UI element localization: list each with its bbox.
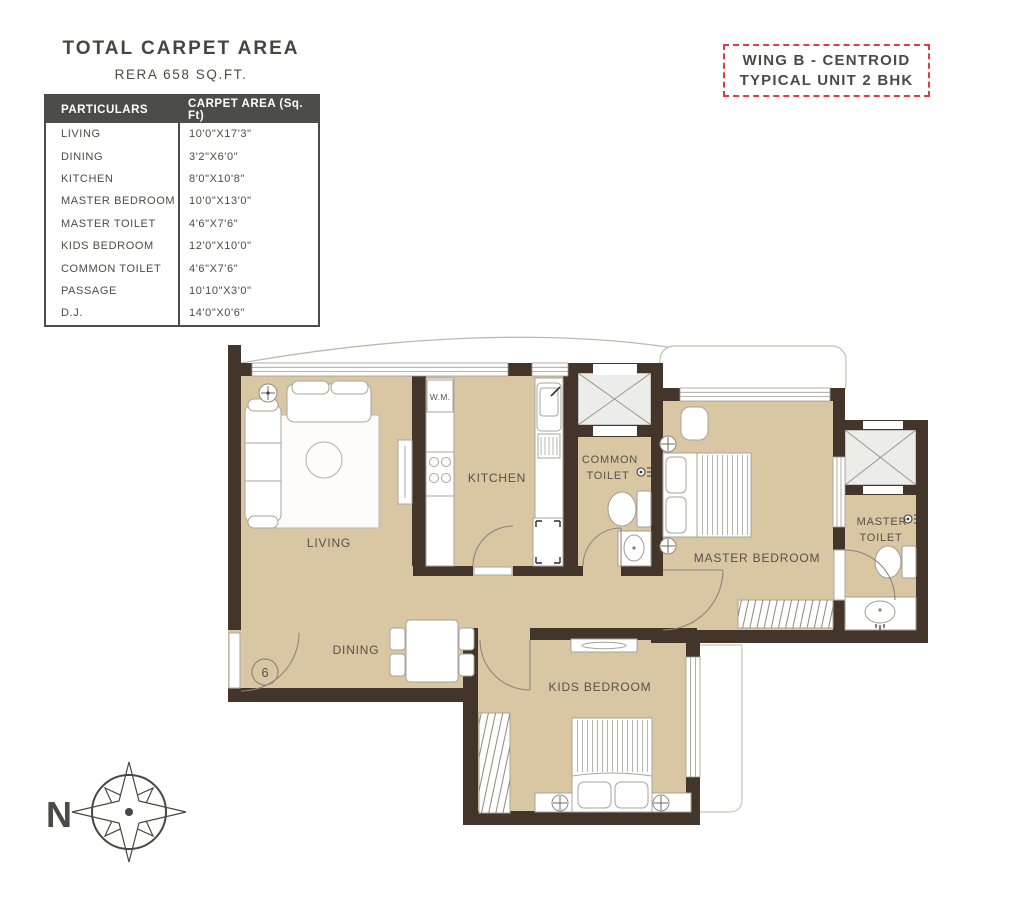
living-ceiling-point: [259, 384, 277, 402]
floor-plan-drawing: 6 LIVING DINING KITCHEN W.M. COMMON TOIL…: [0, 0, 1018, 899]
kitchen-label: KITCHEN: [468, 471, 526, 485]
master-bedroom-label: MASTER BEDROOM: [694, 551, 821, 565]
master-toilet-label-line2: TOILET: [859, 532, 902, 544]
common-toilet-label-line2: TOILET: [586, 470, 629, 482]
living-label: LIVING: [307, 536, 351, 550]
floorplan-page: TOTAL CARPET AREA RERA 658 SQ.FT. PARTIC…: [0, 0, 1018, 899]
compass-rose: N: [46, 762, 186, 862]
compass-north-label: N: [46, 794, 72, 835]
dining-label: DINING: [333, 643, 380, 657]
master-toilet-label-line1: MASTER: [857, 516, 908, 528]
common-toilet-label-line1: COMMON: [582, 454, 638, 466]
kids-bedroom-label: KIDS BEDROOM: [549, 680, 652, 694]
washing-machine-label: W.M.: [430, 392, 451, 402]
unit-number-label: 6: [261, 665, 268, 680]
